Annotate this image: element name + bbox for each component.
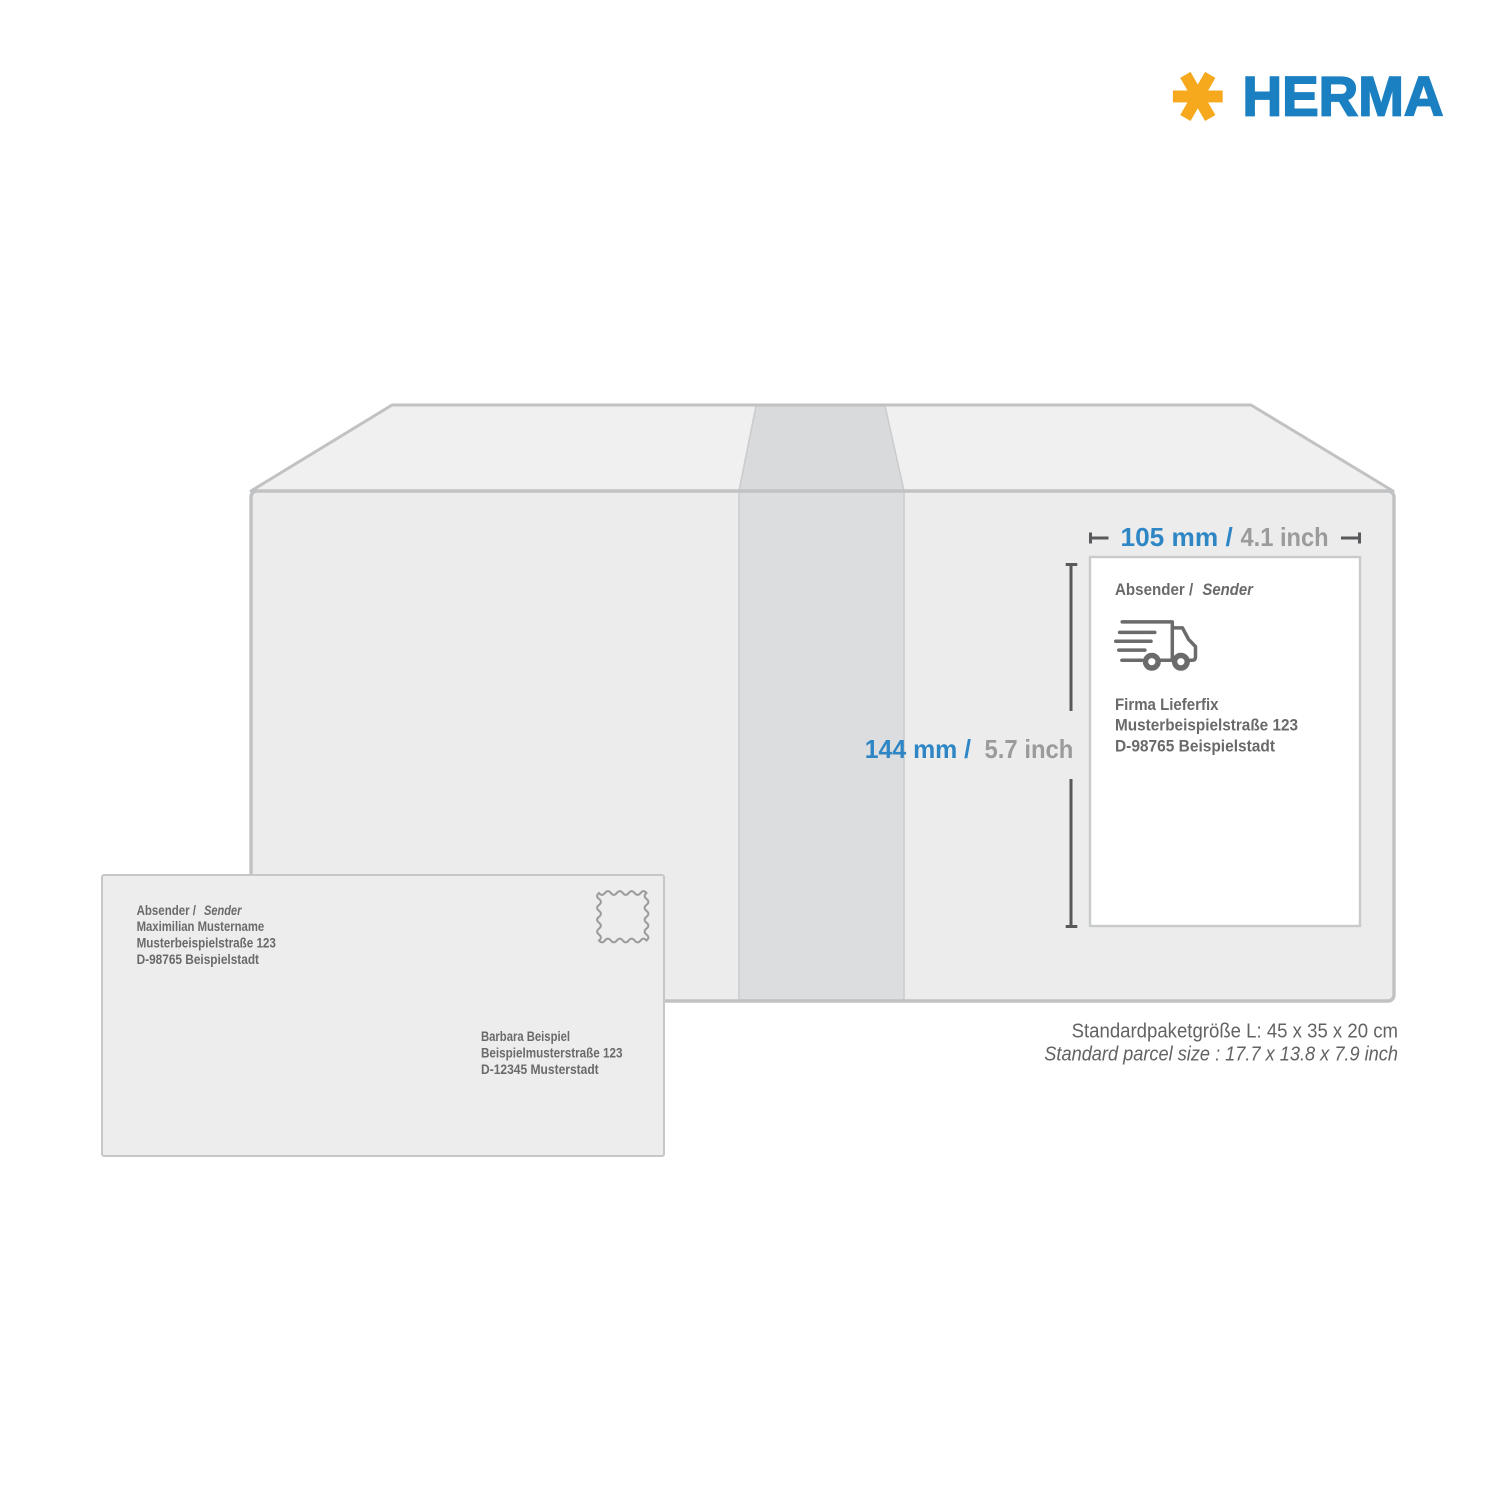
svg-text:4.1 inch: 4.1 inch xyxy=(1241,522,1329,552)
svg-text:105 mm /: 105 mm / xyxy=(1121,522,1233,552)
svg-text:5.7 inch: 5.7 inch xyxy=(985,734,1074,764)
svg-text:D-98765 Beispielstadt: D-98765 Beispielstadt xyxy=(137,952,260,968)
svg-text:Firma Lieferfix: Firma Lieferfix xyxy=(1115,696,1219,714)
svg-text:Musterbeispielstraße 123: Musterbeispielstraße 123 xyxy=(1115,717,1298,735)
svg-text:Beispielmusterstraße 123: Beispielmusterstraße 123 xyxy=(481,1045,623,1061)
svg-text:Sender: Sender xyxy=(204,903,243,919)
svg-text:D-98765 Beispielstadt: D-98765 Beispielstadt xyxy=(1115,737,1276,755)
svg-text:HERMA: HERMA xyxy=(1243,66,1444,128)
svg-text:Barbara Beispiel: Barbara Beispiel xyxy=(481,1029,570,1045)
svg-text:Absender /: Absender / xyxy=(1115,581,1194,599)
svg-text:Maximilian Mustername: Maximilian Mustername xyxy=(137,919,265,935)
svg-text:Sender: Sender xyxy=(1202,581,1254,599)
svg-text:Absender /: Absender / xyxy=(137,903,196,919)
svg-text:Standardpaketgröße L: 45 x 35: Standardpaketgröße L: 45 x 35 x 20 cm xyxy=(1072,1019,1398,1042)
svg-text:Standard parcel size : 17.7 x: Standard parcel size : 17.7 x 13.8 x 7.9… xyxy=(1044,1043,1398,1066)
svg-text:144 mm /: 144 mm / xyxy=(865,734,971,764)
svg-text:D-12345 Musterstadt: D-12345 Musterstadt xyxy=(481,1062,599,1078)
svg-text:Musterbeispielstraße 123: Musterbeispielstraße 123 xyxy=(137,936,276,952)
